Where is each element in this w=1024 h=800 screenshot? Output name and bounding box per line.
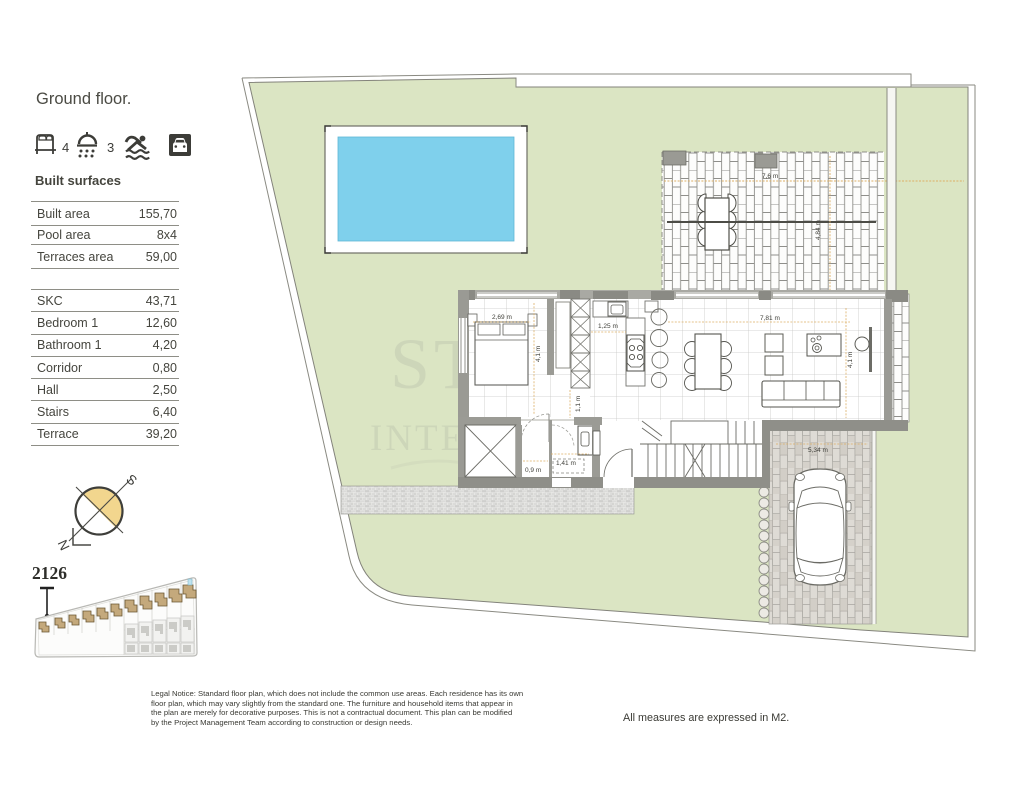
svg-text:5,34 m: 5,34 m (808, 447, 828, 454)
svg-text:0,9 m: 0,9 m (525, 467, 541, 474)
svg-text:2,69 m: 2,69 m (492, 314, 512, 321)
svg-text:7,6 m: 7,6 m (762, 173, 778, 180)
svg-text:7,81 m: 7,81 m (760, 315, 780, 322)
svg-text:1,41 m: 1,41 m (556, 460, 576, 467)
svg-text:4,1 m: 4,1 m (535, 346, 542, 362)
svg-text:4,1 m: 4,1 m (847, 352, 854, 368)
svg-text:1,1 m: 1,1 m (575, 396, 582, 412)
svg-text:1,25 m: 1,25 m (598, 323, 618, 330)
svg-text:4,84 m: 4,84 m (815, 220, 822, 240)
